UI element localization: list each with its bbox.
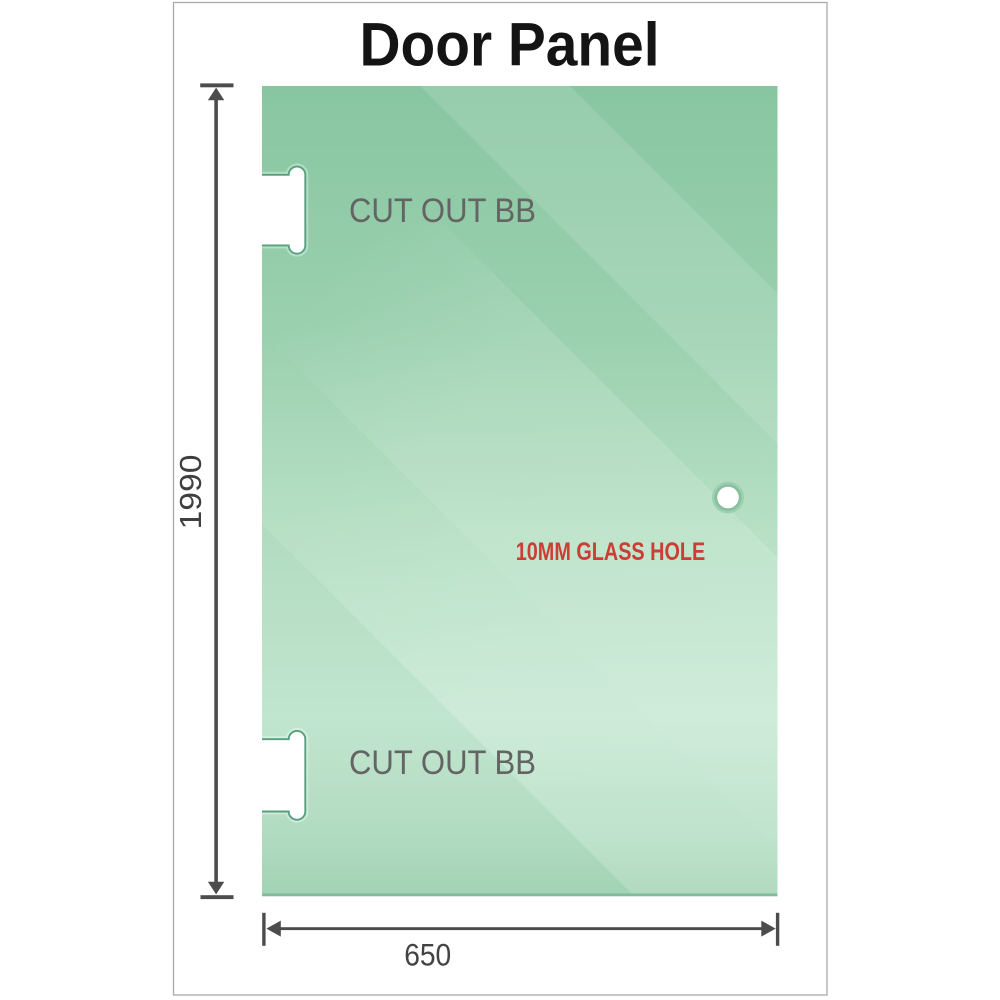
svg-text:1990: 1990 [173, 455, 208, 530]
svg-text:Door Panel: Door Panel [360, 11, 660, 79]
svg-text:10MM GLASS HOLE: 10MM GLASS HOLE [516, 538, 706, 566]
svg-text:CUT OUT BB: CUT OUT BB [349, 744, 536, 782]
svg-text:650: 650 [404, 937, 451, 973]
svg-text:CUT OUT BB: CUT OUT BB [349, 192, 536, 230]
